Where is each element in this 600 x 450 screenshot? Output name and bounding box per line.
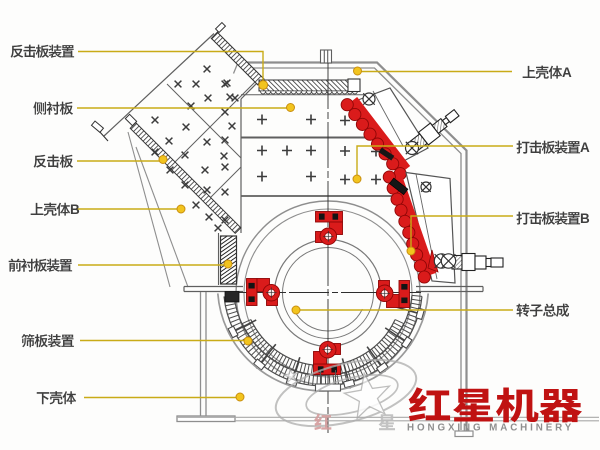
svg-text:B: B — [580, 211, 590, 226]
svg-text:B: B — [70, 202, 80, 217]
svg-text:A: A — [580, 140, 590, 155]
svg-text:A: A — [562, 65, 572, 80]
svg-text:HONGXING MACHINERY: HONGXING MACHINERY — [407, 423, 574, 434]
